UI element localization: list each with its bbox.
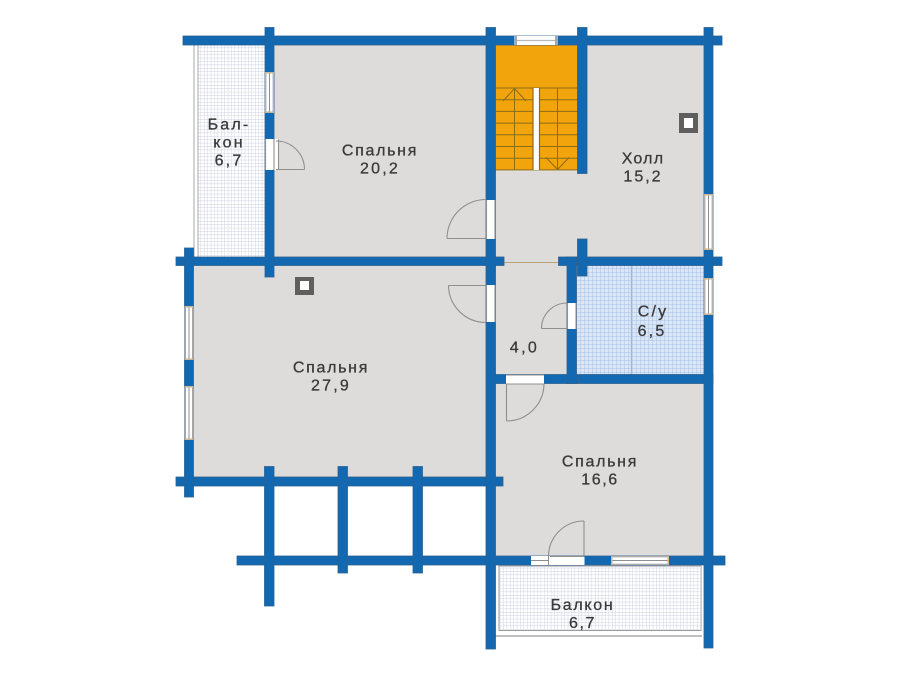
svg-text:Холл: Холл (622, 151, 665, 168)
svg-text:20,2: 20,2 (360, 161, 400, 178)
svg-text:Балкон: Балкон (551, 597, 615, 614)
svg-text:15,2: 15,2 (623, 169, 662, 186)
svg-text:кон: кон (213, 135, 245, 152)
svg-text:4,0: 4,0 (510, 340, 539, 357)
svg-text:С/у: С/у (638, 304, 669, 321)
svg-text:Спальня: Спальня (293, 360, 369, 377)
svg-text:6,7: 6,7 (215, 153, 244, 170)
svg-text:Спальня: Спальня (342, 143, 418, 160)
svg-text:16,6: 16,6 (581, 472, 619, 489)
svg-text:Спальня: Спальня (562, 454, 638, 471)
svg-text:27,9: 27,9 (311, 378, 351, 395)
svg-text:6,7: 6,7 (569, 615, 596, 632)
svg-text:Бал-: Бал- (208, 117, 251, 134)
svg-text:6,5: 6,5 (638, 323, 667, 340)
